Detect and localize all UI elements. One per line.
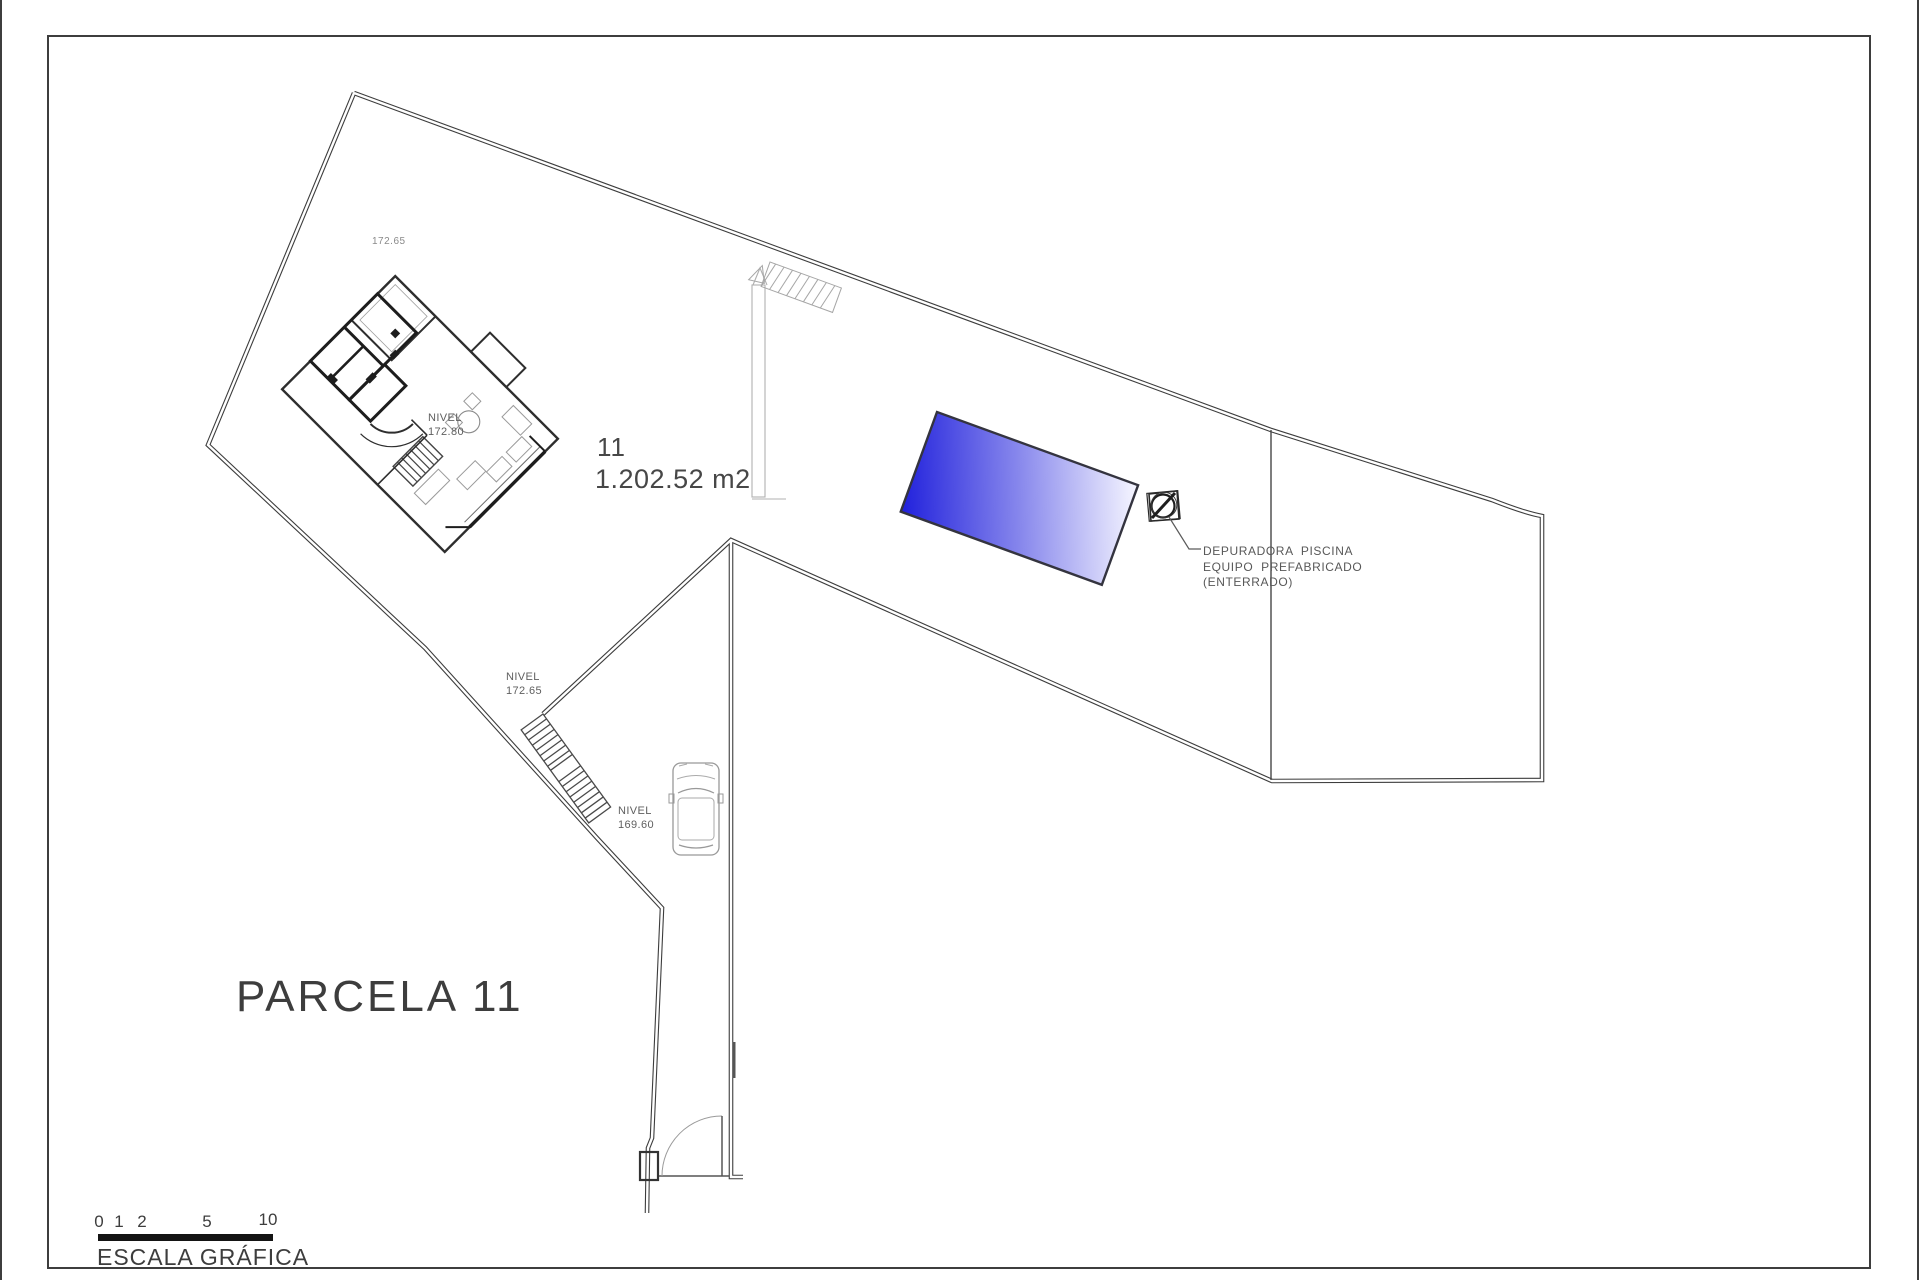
scale-tick-1: 1 <box>114 1212 123 1232</box>
parcel-number-label: 11 <box>597 432 626 463</box>
scale-bar <box>98 1234 273 1241</box>
swimming-pool <box>901 412 1138 585</box>
parcel-title: PARCELA 11 <box>236 972 524 1022</box>
site-plan-sheet: 172.65 NIVEL172.80 11 1.202.52 m2 NIVEL1… <box>0 0 1920 1280</box>
scale-tick-5: 5 <box>202 1212 211 1232</box>
pool-filter-note: DEPURADORA PISCINAEQUIPO PREFABRICADO(EN… <box>1203 544 1362 591</box>
nivel-mid-label: NIVEL172.65 <box>506 670 542 698</box>
drawing-frame <box>48 36 1870 1268</box>
door-swing-arc <box>662 1116 722 1176</box>
car <box>669 763 723 855</box>
nivel-low-label: NIVEL169.60 <box>618 804 654 832</box>
retaining-wall <box>752 268 786 499</box>
plan-drawing <box>0 0 1920 1280</box>
parcel-boundary <box>208 93 1542 1213</box>
elevation-label-top: 172.65 <box>372 236 406 247</box>
house-plan <box>282 257 577 552</box>
house-outer-wall <box>282 276 558 552</box>
pool-filter-symbol <box>1147 491 1180 522</box>
scale-caption: ESCALA GRÁFICA <box>97 1244 309 1271</box>
nivel-house-label: NIVEL172.80 <box>428 411 464 439</box>
parcel-area-label: 1.202.52 m2 <box>595 464 751 495</box>
scale-tick-0: 0 <box>94 1212 103 1232</box>
pool-filter-leader-line <box>1169 517 1201 549</box>
scale-tick-2: 2 <box>137 1212 146 1232</box>
scale-tick-10: 10 <box>259 1210 278 1230</box>
